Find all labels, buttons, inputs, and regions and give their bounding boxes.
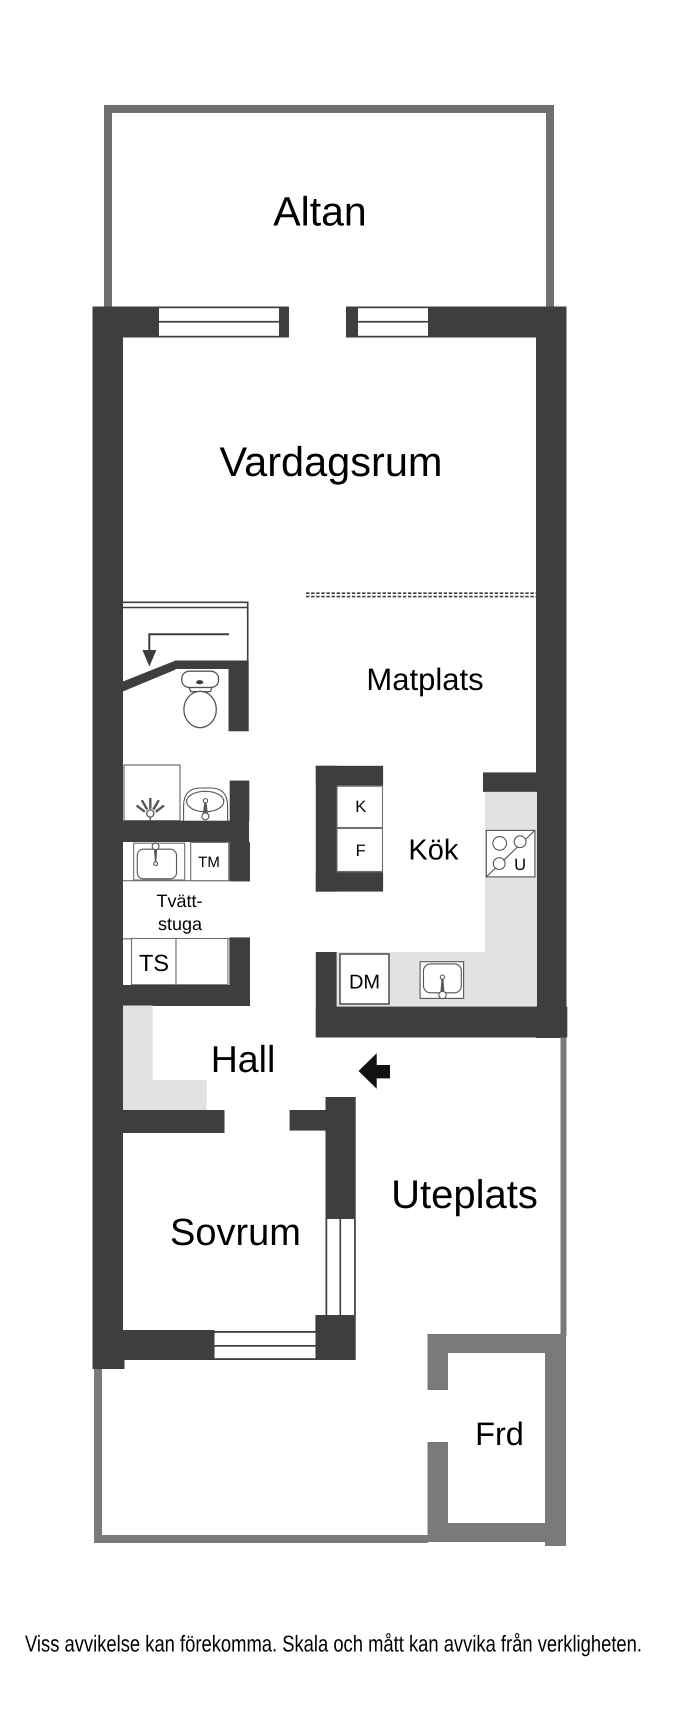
svg-text:Kök: Kök	[408, 835, 458, 867]
svg-text:Viss avvikelse kan förekomma.: Viss avvikelse kan förekomma. Skala och …	[25, 1631, 642, 1657]
svg-text:Uteplats: Uteplats	[391, 1173, 538, 1217]
svg-text:U: U	[514, 856, 526, 874]
svg-text:Matplats: Matplats	[366, 662, 483, 697]
svg-text:stuga: stuga	[158, 914, 203, 934]
svg-text:Sovrum: Sovrum	[170, 1212, 301, 1254]
svg-text:K: K	[355, 798, 366, 816]
svg-text:Vardagsrum: Vardagsrum	[220, 438, 443, 485]
svg-text:Frd: Frd	[475, 1416, 524, 1452]
svg-text:Tvätt-: Tvätt-	[156, 891, 202, 911]
svg-text:Altan: Altan	[273, 189, 366, 235]
svg-text:Hall: Hall	[211, 1038, 276, 1080]
svg-text:F: F	[356, 842, 366, 860]
svg-text:DM: DM	[349, 972, 380, 994]
svg-text:TM: TM	[198, 854, 220, 871]
svg-text:TS: TS	[139, 950, 169, 976]
